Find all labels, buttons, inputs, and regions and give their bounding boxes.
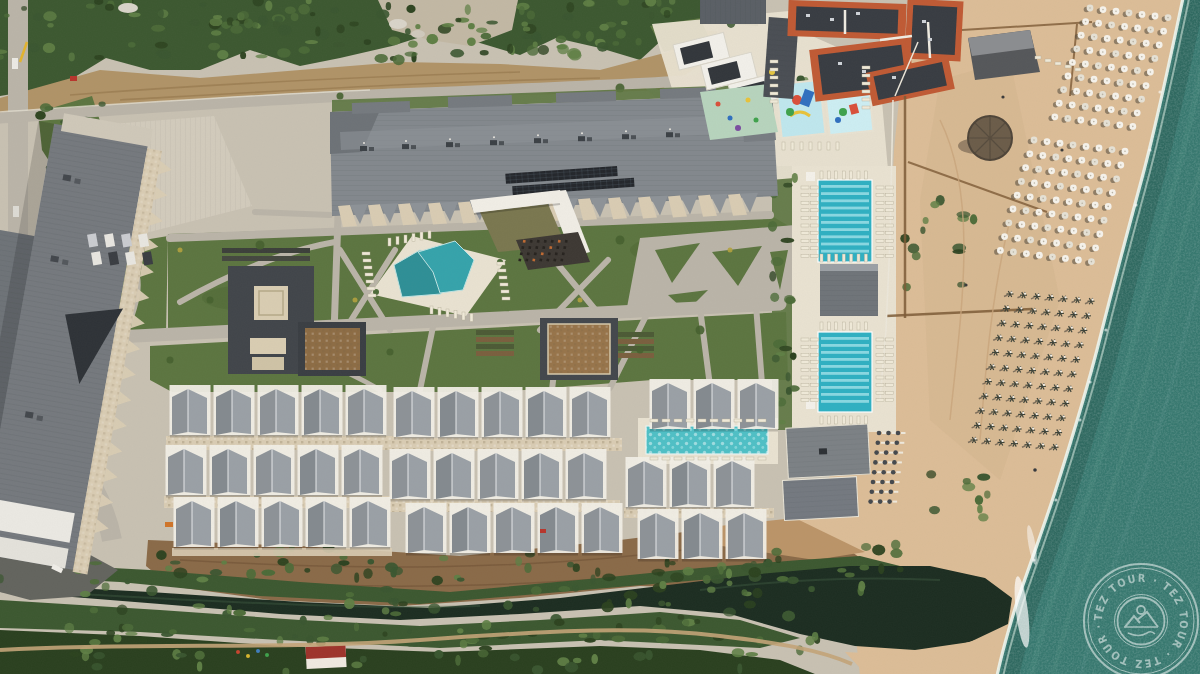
scene-canvas: TEZ TOUR · TEZ TOUR · TEZ TOUR · <box>0 0 1200 674</box>
photo-grain <box>0 0 1200 674</box>
aerial-resort-photo: TEZ TOUR · TEZ TOUR · TEZ TOUR · <box>0 0 1200 674</box>
